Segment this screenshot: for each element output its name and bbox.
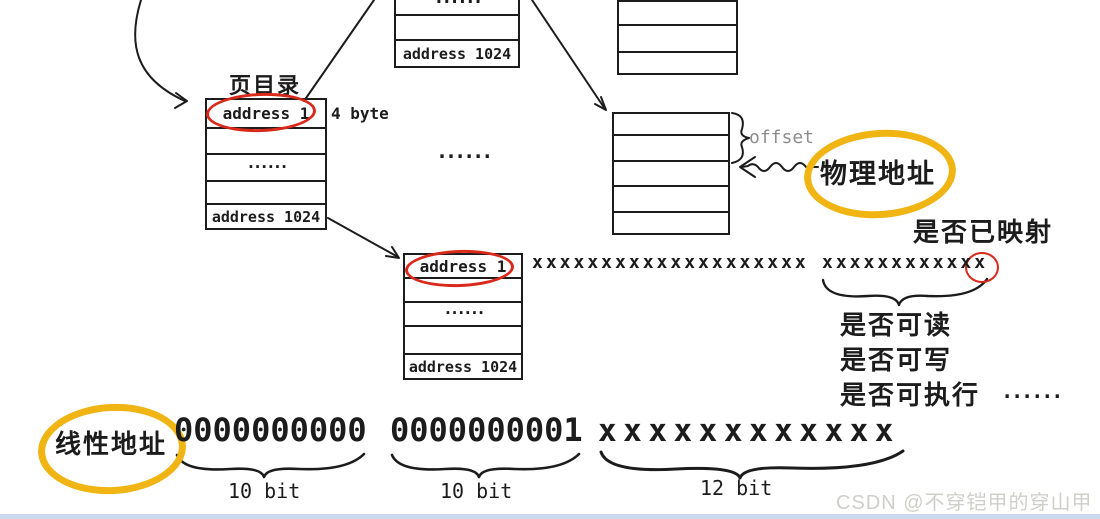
arrow-pd-entry1024-to-mid-page-table <box>328 218 399 258</box>
table-row <box>614 114 728 136</box>
offset-brace <box>732 113 749 163</box>
ellipsis-dots: ...... <box>246 153 286 172</box>
mapped-label: 是否已映射 <box>913 212 1053 249</box>
table-row-address-1024: address 1024 <box>207 205 325 228</box>
table-field-caption: 10 bit <box>440 479 512 503</box>
arrow-upper-table-to-physical-frame <box>532 0 606 110</box>
underbrace-offset-field <box>601 451 903 478</box>
table-row: ...... <box>405 303 521 327</box>
ellipsis-dots: ...... <box>433 0 480 8</box>
offset-field-bits: xxxxxxxxxxxx <box>598 413 900 449</box>
table-row <box>405 327 521 355</box>
arrow-into-page-directory <box>135 0 187 108</box>
linear-address-label: 线性地址 <box>55 424 167 461</box>
table-field-bits: 0000000001 <box>390 411 583 449</box>
physical-address-label: 物理地址 <box>820 152 936 191</box>
csdn-watermark: CSDN @不穿铠甲的穿山甲 <box>836 486 1093 515</box>
physical-frame-table <box>612 112 730 235</box>
underbrace-dir-field <box>177 454 364 477</box>
upper-page-table: ...... address 1024 <box>394 0 520 68</box>
dir-field-bits: 0000000000 <box>174 411 367 449</box>
table-row: address 1024 <box>396 41 518 66</box>
table-row <box>207 129 325 155</box>
offset-label: offset <box>749 127 814 148</box>
table-row <box>619 26 736 53</box>
entry-size-label: 4 byte <box>331 104 389 123</box>
table-row <box>619 2 736 26</box>
flag-writable-label: 是否可写 <box>840 340 952 377</box>
table-row-address-1024: address 1024 <box>405 355 521 378</box>
table-row: ...... <box>207 155 325 182</box>
underbrace-table-field <box>392 454 579 477</box>
table-row <box>396 16 518 41</box>
pte-address-bits: xxxxxxxxxxxxxxxxxxxx <box>532 252 809 273</box>
offset-field-caption: 12 bit <box>700 476 772 500</box>
more-page-tables-ellipsis: ...... <box>436 145 490 169</box>
line-pd-entry1-to-upper-table <box>304 0 374 101</box>
paging-diagram: ...... address 1024 页目录 address 1 ......… <box>0 0 1100 519</box>
table-row <box>207 182 325 205</box>
table-row <box>614 213 728 233</box>
table-row <box>614 187 728 213</box>
ellipsis-dots: ...... <box>443 299 483 318</box>
underbrace-flag-bits <box>823 279 987 305</box>
table-row <box>614 162 728 187</box>
flag-readable-label: 是否可读 <box>840 305 952 342</box>
pte-flag-bits: xxxxxxxxxxxx <box>822 252 988 273</box>
dir-field-caption: 10 bit <box>228 479 300 503</box>
table-row <box>614 136 728 162</box>
ellipsis-dots: ...... <box>1001 379 1061 403</box>
table-row: ...... <box>396 0 518 16</box>
table-row <box>619 53 736 73</box>
upper-right-frame <box>617 0 738 75</box>
flag-executable-label: 是否可执行 ...... <box>840 375 1061 412</box>
bottom-strip <box>0 514 1100 519</box>
